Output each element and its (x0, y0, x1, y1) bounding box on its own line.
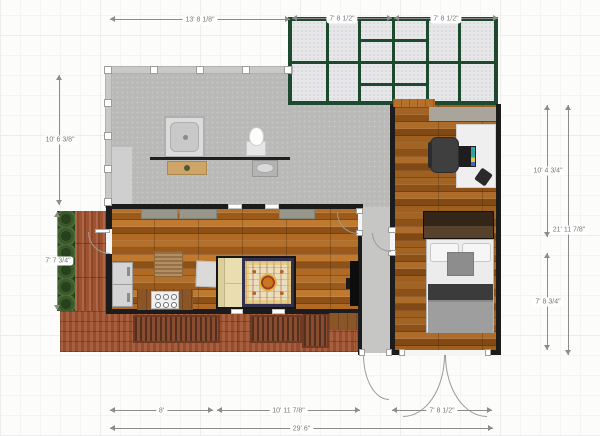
window-post (104, 198, 112, 206)
persian-rug (242, 258, 294, 307)
hallway-exit-door-swing (363, 355, 389, 400)
window-in-wall[interactable] (231, 309, 243, 314)
shower-drain (183, 135, 188, 140)
sofa-with-rug[interactable] (216, 256, 296, 309)
door-threshold[interactable] (393, 99, 435, 107)
bed-cushion (447, 252, 474, 276)
laptop[interactable] (459, 146, 476, 167)
dimension-bottom-center: 10' 11 7/8" (217, 410, 360, 411)
fridge-handle (127, 267, 130, 276)
dimension-label: 7' 8 1/2" (426, 407, 457, 416)
dimension-label: 21' 11 7/8" (550, 226, 589, 235)
window-in-wall[interactable] (228, 204, 242, 209)
dimension-right-upper: 10' 4 3/4" (547, 105, 548, 237)
burner (155, 294, 161, 300)
bed[interactable] (426, 239, 494, 333)
tv-mount (346, 278, 350, 289)
sofa (218, 258, 243, 307)
dimension-label: 10' 11 7/8" (269, 407, 308, 416)
dimension-conservatory-left: 7' 8 1/2" (292, 18, 392, 19)
office-chair[interactable] (430, 137, 459, 173)
window-post (104, 132, 112, 140)
dimension-label: 7' 8 1/2" (326, 15, 357, 24)
dimension-label: 10' 6 3/8" (42, 136, 77, 145)
dimension-bottom-overall: 29' 6" (110, 428, 493, 429)
dimension-left-lower: 7' 7 3/4" (57, 212, 58, 310)
kitchen-counter-top[interactable] (179, 209, 217, 219)
chair-back (428, 142, 432, 168)
conservatory-mullion-sub (358, 39, 429, 42)
window-post (284, 66, 292, 74)
dimension-left-upper: 10' 6 3/8" (59, 75, 60, 205)
wardrobe[interactable] (423, 211, 494, 239)
toilet[interactable] (249, 127, 264, 146)
kitchen-counter-top[interactable] (279, 209, 315, 219)
dimension-right-lower: 7' 8 3/4" (547, 253, 548, 350)
sink-basin (256, 163, 274, 173)
dimension-label: 7' 7 3/4" (42, 257, 73, 266)
conservatory[interactable] (288, 17, 498, 105)
floor-pad[interactable] (196, 261, 218, 288)
burner (163, 302, 169, 308)
dimension-top-main: 13' 8 1/8" (110, 19, 290, 20)
bed-band (428, 284, 493, 300)
dimension-label: 7' 8 3/4" (532, 297, 563, 306)
fridge-handle (127, 293, 130, 302)
window-post (242, 66, 250, 74)
deck-step[interactable] (329, 313, 358, 330)
deck-side[interactable] (75, 211, 108, 312)
window-post (150, 66, 158, 74)
deck-bench-center[interactable] (250, 315, 302, 343)
dining-table[interactable] (154, 251, 183, 277)
burner (155, 302, 161, 308)
wall-bedroom-right[interactable] (496, 104, 501, 355)
floorplan-canvas: 13' 8 1/8" 7' 8 1/2" 7' 8 1/2" 10' 6 3/8… (0, 0, 600, 436)
dimension-label: 8' (156, 407, 167, 416)
deck-bench-left[interactable] (133, 315, 220, 343)
stove[interactable] (151, 291, 179, 309)
bathroom-closet[interactable] (112, 147, 132, 204)
window-post (104, 66, 112, 74)
shower[interactable] (164, 116, 205, 158)
dimension-right-overall: 21' 11 7/8" (568, 105, 569, 355)
dimension-bottom-left: 8' (110, 410, 213, 411)
fridge-divider (113, 284, 132, 285)
dimension-bottom-right: 7' 8 1/2" (392, 410, 492, 411)
deck-bench-right[interactable] (302, 313, 329, 348)
conservatory-mullion-mid (292, 61, 494, 64)
burner (171, 302, 177, 308)
vanity-cabinet[interactable] (167, 161, 207, 175)
window-in-wall[interactable] (265, 204, 279, 209)
wardrobe-front (424, 226, 493, 238)
room-bathroom-extension[interactable] (292, 104, 392, 210)
blanket (428, 300, 493, 333)
window-post (104, 99, 112, 107)
window-post (104, 165, 112, 173)
fridge[interactable] (112, 262, 133, 307)
vanity-knob (184, 165, 190, 171)
tv[interactable] (350, 261, 359, 306)
dimension-label: 10' 4 3/4" (530, 167, 565, 176)
dimension-label: 13' 8 1/8" (182, 16, 217, 25)
burner (163, 294, 169, 300)
window-in-wall[interactable] (272, 309, 285, 314)
dimension-label: 7' 8 1/2" (430, 15, 461, 24)
window-post (196, 66, 204, 74)
kitchen-counter-top[interactable] (141, 209, 178, 219)
office-shelf[interactable] (429, 107, 496, 121)
laptop-screen (471, 147, 475, 166)
conservatory-mullion-sub (358, 83, 429, 86)
dimension-conservatory-right: 7' 8 1/2" (394, 18, 498, 19)
sofa-cushion (224, 258, 242, 284)
dimension-label: 29' 6" (290, 425, 313, 434)
sink[interactable] (252, 160, 278, 177)
burner (171, 294, 177, 300)
